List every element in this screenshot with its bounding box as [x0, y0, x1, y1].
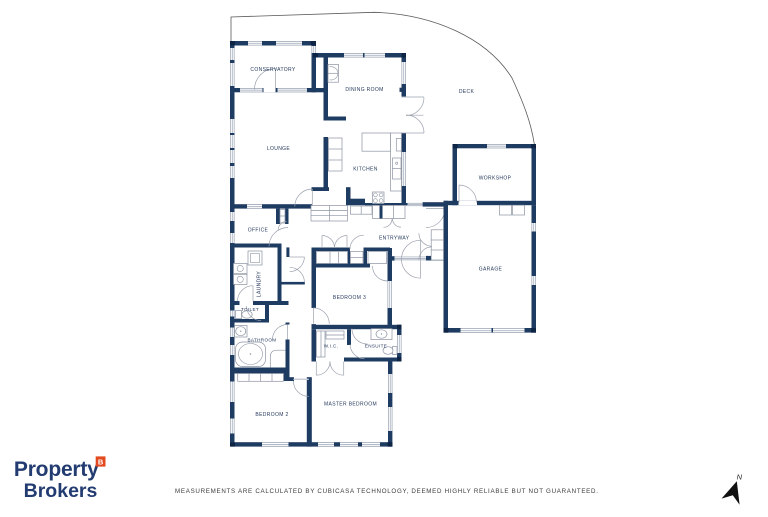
- svg-text:GARAGE: GARAGE: [479, 267, 503, 273]
- svg-text:W.I.C.: W.I.C.: [324, 344, 339, 349]
- svg-text:Property: Property: [14, 458, 99, 481]
- svg-text:LOUNGE: LOUNGE: [267, 146, 291, 152]
- svg-text:TOILET: TOILET: [241, 307, 259, 312]
- svg-text:ENSUITE: ENSUITE: [365, 344, 387, 349]
- svg-text:B: B: [98, 457, 104, 466]
- svg-text:BATHROOM: BATHROOM: [247, 338, 276, 343]
- svg-text:BEDROOM 3: BEDROOM 3: [333, 295, 366, 301]
- svg-text:DECK: DECK: [459, 89, 475, 95]
- svg-text:ENTRYWAY: ENTRYWAY: [379, 236, 410, 242]
- svg-text:WORKSHOP: WORKSHOP: [479, 176, 512, 182]
- svg-text:CONSERVATORY: CONSERVATORY: [250, 67, 295, 73]
- svg-text:Brokers: Brokers: [24, 480, 98, 502]
- svg-text:KITCHEN: KITCHEN: [353, 167, 377, 173]
- svg-text:LAUNDRY: LAUNDRY: [257, 271, 263, 298]
- svg-text:MEASUREMENTS ARE CALCULATED BY: MEASUREMENTS ARE CALCULATED BY CUBICASA …: [175, 488, 599, 495]
- svg-text:N: N: [737, 473, 743, 482]
- svg-text:MASTER BEDROOM: MASTER BEDROOM: [324, 402, 377, 408]
- svg-text:OFFICE: OFFICE: [248, 228, 269, 234]
- svg-text:DINING ROOM: DINING ROOM: [345, 87, 383, 93]
- svg-text:BEDROOM 2: BEDROOM 2: [255, 412, 288, 418]
